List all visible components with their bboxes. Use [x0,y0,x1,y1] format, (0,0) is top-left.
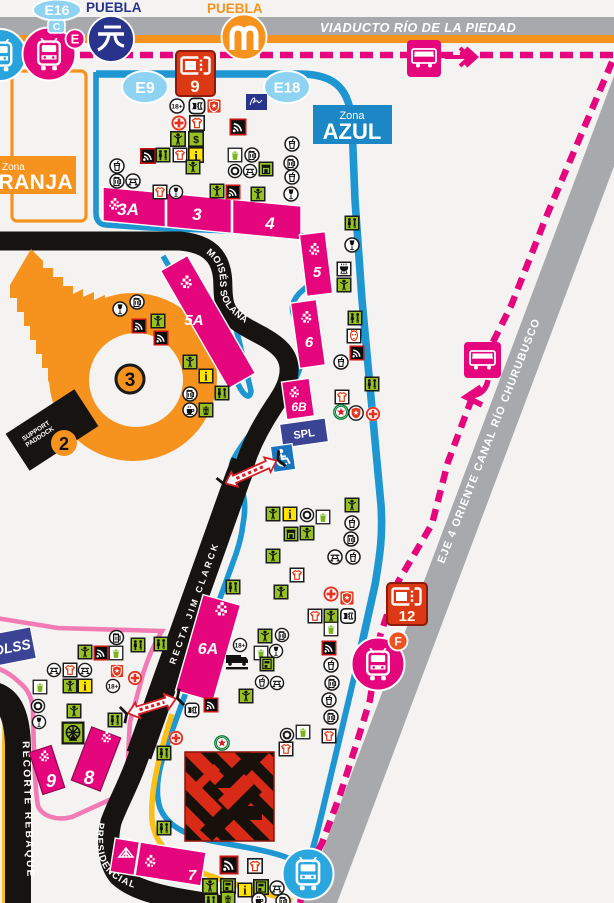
svg-text:9: 9 [46,771,56,791]
svg-text:E16: E16 [45,2,70,18]
svg-text:2: 2 [59,434,69,454]
svg-text:AZUL: AZUL [323,119,382,144]
svg-text:9: 9 [190,77,199,96]
svg-text:E: E [71,32,80,47]
svg-text:PUEBLA: PUEBLA [207,1,263,16]
svg-text:5A: 5A [184,312,203,329]
svg-text:8: 8 [84,768,95,789]
svg-text:6B: 6B [291,400,307,414]
svg-text:3: 3 [192,205,202,224]
svg-text:6: 6 [305,334,314,351]
svg-text:3A: 3A [117,200,139,219]
svg-text:E9: E9 [135,80,155,97]
svg-text:12: 12 [399,608,416,625]
svg-text:F: F [394,635,401,649]
svg-text:E18: E18 [274,80,301,97]
svg-text:C: C [53,21,61,33]
svg-text:4: 4 [264,214,275,233]
svg-text:NARANJA: NARANJA [0,171,73,194]
svg-text:6A: 6A [198,641,218,658]
svg-text:5: 5 [313,264,322,281]
svg-text:7: 7 [188,867,197,884]
svg-text:VIADUCTO RÍO DE LA PIEDAD: VIADUCTO RÍO DE LA PIEDAD [320,20,516,35]
svg-text:PUEBLA: PUEBLA [86,0,142,15]
svg-text:3: 3 [125,370,136,391]
